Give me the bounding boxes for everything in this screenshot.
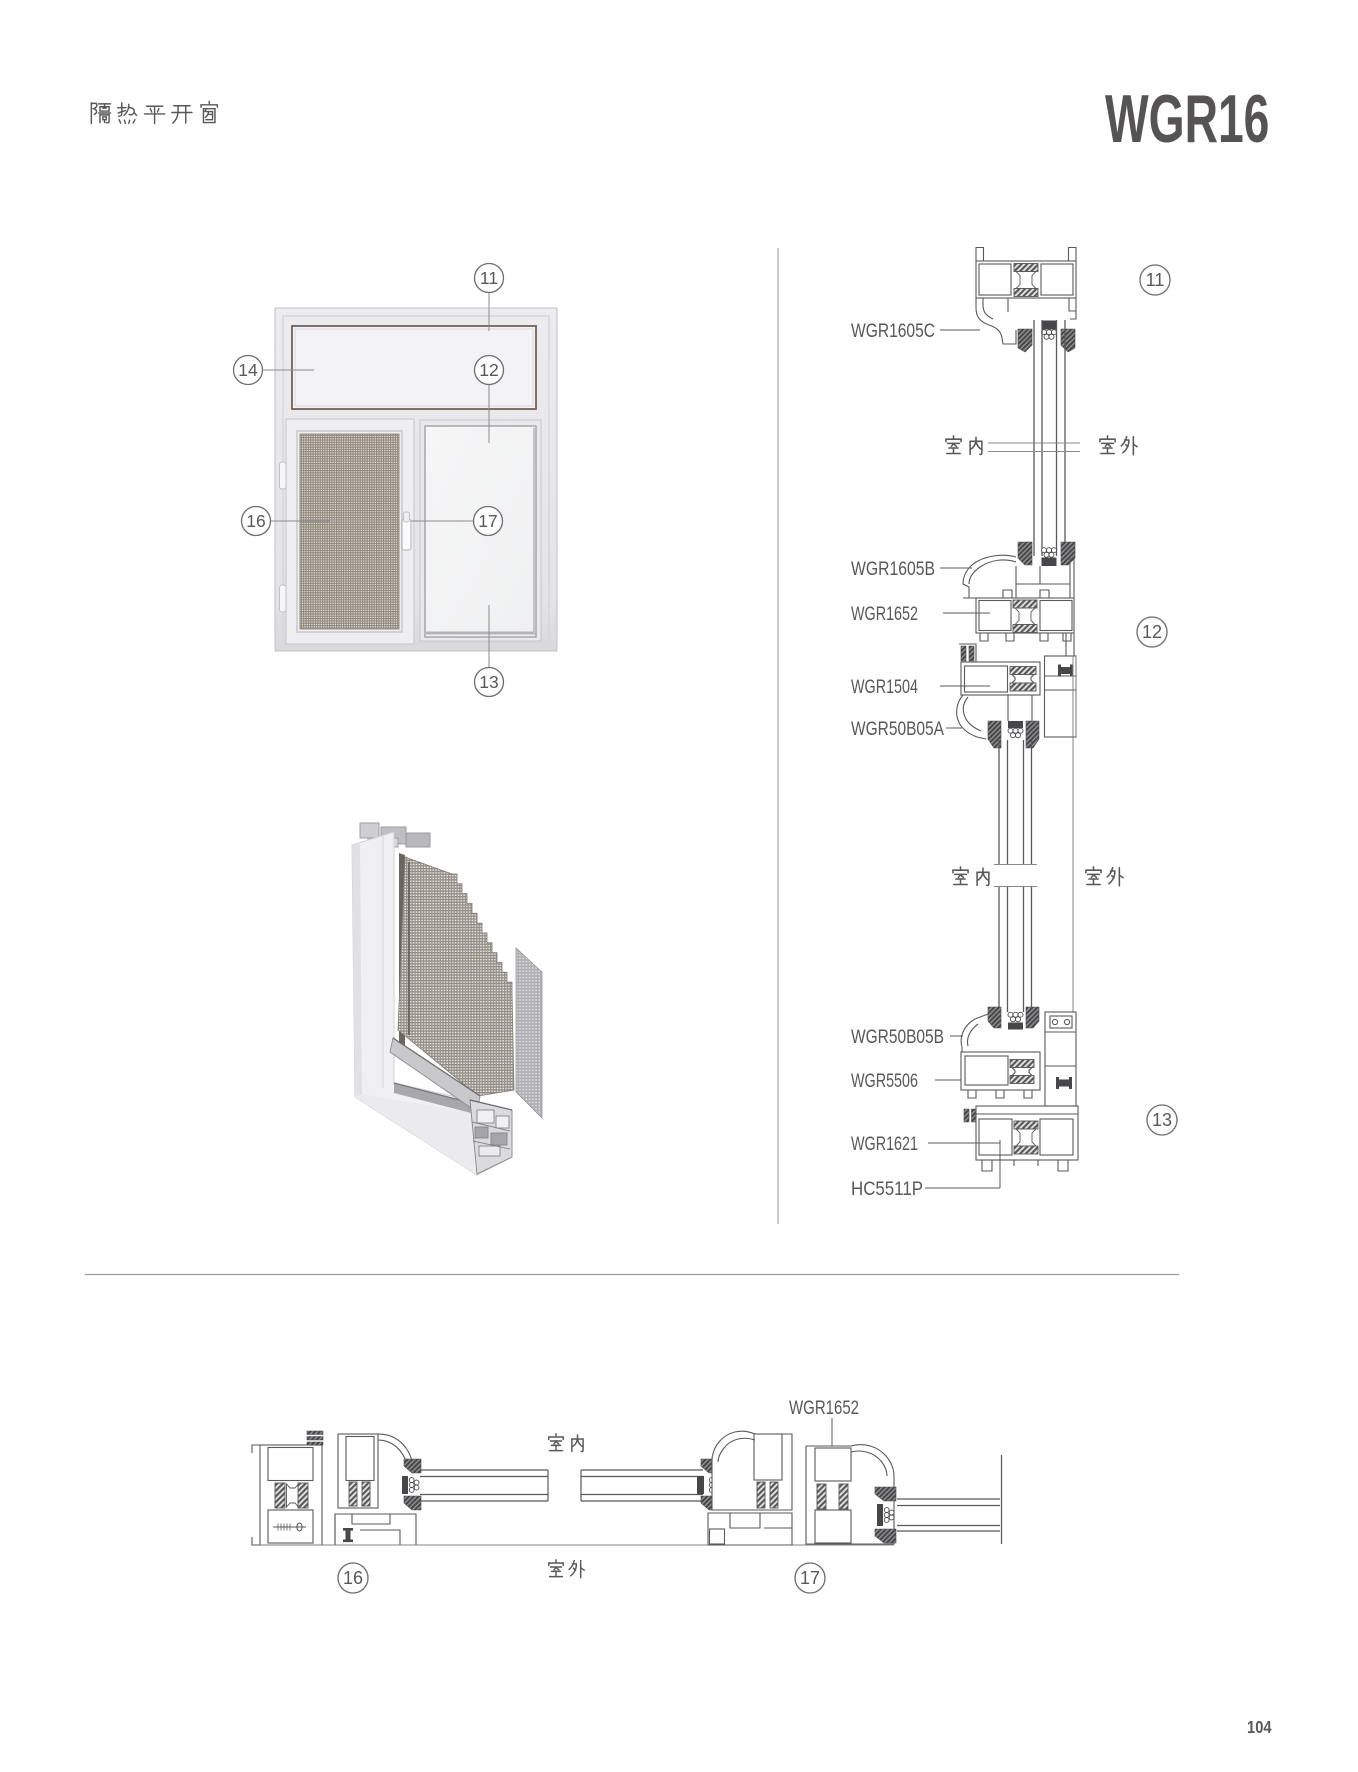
- svg-text:WGR1504: WGR1504: [851, 677, 918, 698]
- svg-text:WGR1621: WGR1621: [851, 1134, 918, 1155]
- svg-text:WGR1652: WGR1652: [789, 1398, 859, 1419]
- svg-text:17: 17: [478, 511, 497, 531]
- svg-text:HC5511P: HC5511P: [851, 1179, 923, 1200]
- svg-text:17: 17: [800, 1568, 820, 1588]
- svg-text:13: 13: [1152, 1110, 1172, 1130]
- svg-text:104: 104: [1247, 1718, 1272, 1738]
- svg-text:13: 13: [479, 672, 498, 692]
- svg-text:WGR1652: WGR1652: [851, 604, 918, 625]
- svg-text:12: 12: [1142, 622, 1162, 642]
- svg-text:12: 12: [479, 360, 498, 380]
- svg-text:WGR1605B: WGR1605B: [851, 559, 935, 580]
- svg-text:14: 14: [238, 360, 258, 380]
- svg-text:WGR50B05B: WGR50B05B: [851, 1027, 944, 1048]
- svg-text:WGR1605C: WGR1605C: [851, 321, 935, 342]
- svg-text:16: 16: [343, 1568, 363, 1588]
- svg-text:WGR5506: WGR5506: [851, 1071, 918, 1092]
- svg-text:WGR16: WGR16: [1105, 81, 1269, 157]
- svg-text:11: 11: [480, 268, 498, 288]
- svg-text:16: 16: [246, 511, 265, 531]
- svg-text:11: 11: [1146, 270, 1165, 290]
- svg-text:WGR50B05A: WGR50B05A: [851, 719, 944, 740]
